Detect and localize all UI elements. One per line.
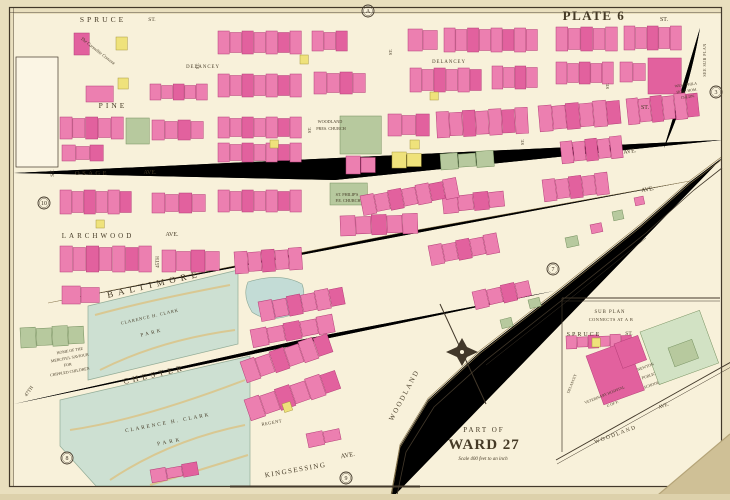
building xyxy=(126,118,149,144)
building xyxy=(361,158,375,173)
building xyxy=(182,462,199,477)
building xyxy=(670,26,681,50)
building xyxy=(242,31,253,54)
building xyxy=(288,247,302,270)
street-label-larchwood-ave: AVE. xyxy=(165,232,179,238)
building xyxy=(568,29,580,50)
building xyxy=(60,117,72,139)
building-row xyxy=(118,78,128,89)
building-row xyxy=(624,26,681,50)
building xyxy=(579,103,594,127)
building xyxy=(173,84,184,100)
building xyxy=(648,58,681,94)
woodland-pres-church-label-2: PRES. CHURCH xyxy=(316,126,346,131)
building xyxy=(624,26,635,50)
atlas-plate-map: A371089 SPRUCEST.PLATE 6ST.DELANCEYDELAN… xyxy=(0,0,730,500)
building xyxy=(290,143,301,162)
street-label-st-v1: ST. xyxy=(50,169,56,177)
building xyxy=(266,74,277,97)
building xyxy=(659,28,670,49)
building xyxy=(218,74,229,97)
building xyxy=(407,154,421,167)
building xyxy=(422,70,433,91)
building xyxy=(118,78,128,89)
building xyxy=(479,30,490,51)
building xyxy=(475,111,489,135)
svg-text:3: 3 xyxy=(715,90,718,96)
building-row xyxy=(648,58,681,94)
street-label-osage-ave: AVE. xyxy=(143,170,157,176)
building xyxy=(162,86,173,99)
building xyxy=(254,119,265,137)
building xyxy=(353,74,365,93)
street-label-pine-st: ST. xyxy=(641,105,650,111)
building xyxy=(515,66,526,89)
building xyxy=(491,28,502,52)
street-label-st-v10: ST. xyxy=(605,83,610,89)
building-row xyxy=(300,55,308,64)
building xyxy=(266,190,277,212)
building xyxy=(606,27,618,51)
building xyxy=(356,216,371,234)
blank-margin-block xyxy=(16,57,58,167)
building xyxy=(434,68,445,92)
building xyxy=(278,145,289,161)
building xyxy=(410,68,421,92)
building xyxy=(290,74,301,97)
building xyxy=(488,191,504,207)
building xyxy=(300,55,308,64)
building xyxy=(577,337,588,347)
building xyxy=(300,293,317,312)
building xyxy=(278,119,289,137)
edge-marker-7: 7 xyxy=(547,263,559,275)
street-label-spruce-st-right: ST. xyxy=(660,17,669,23)
building xyxy=(278,192,289,211)
svg-text:A: A xyxy=(366,9,371,15)
svg-text:8: 8 xyxy=(66,456,69,462)
building xyxy=(206,252,220,271)
building xyxy=(408,29,422,51)
building xyxy=(139,246,151,272)
building xyxy=(312,31,323,51)
building xyxy=(314,72,326,94)
edge-marker-3: 3 xyxy=(710,86,722,98)
building xyxy=(68,326,84,344)
building-row xyxy=(126,118,149,144)
building xyxy=(626,98,640,125)
building-row xyxy=(410,140,419,149)
building xyxy=(662,96,676,120)
building xyxy=(470,237,486,256)
building xyxy=(152,120,164,140)
building xyxy=(620,62,632,82)
street-label-45th: 45TH xyxy=(156,256,161,268)
svg-text:9: 9 xyxy=(345,476,348,482)
svg-text:7: 7 xyxy=(552,267,555,273)
building xyxy=(278,33,289,53)
building-row xyxy=(218,117,301,138)
building xyxy=(193,195,206,212)
building xyxy=(185,86,196,99)
building xyxy=(473,191,490,210)
building xyxy=(402,187,418,206)
building xyxy=(634,196,645,206)
inset-street-label-spruce: SPRUCE xyxy=(567,332,602,338)
building xyxy=(218,190,229,212)
building xyxy=(526,30,537,51)
building xyxy=(444,28,455,52)
building xyxy=(374,192,390,211)
building xyxy=(126,248,138,271)
building xyxy=(597,138,611,158)
building xyxy=(552,105,567,129)
building xyxy=(324,33,335,50)
building-row xyxy=(592,338,600,347)
building xyxy=(515,28,526,52)
building xyxy=(230,33,241,53)
st-philips-church-label-2: P.E. CHURCH xyxy=(335,198,360,203)
building xyxy=(230,76,241,96)
building xyxy=(62,286,80,304)
building-row xyxy=(62,145,103,161)
building xyxy=(650,95,664,122)
building xyxy=(230,192,241,211)
building xyxy=(581,27,593,51)
woodland-pres-church-label-1: WOODLAND xyxy=(318,119,343,124)
building xyxy=(579,62,590,84)
building xyxy=(449,112,463,136)
building xyxy=(266,117,277,138)
building xyxy=(594,172,609,195)
building xyxy=(486,287,503,305)
building xyxy=(81,288,99,303)
building xyxy=(72,192,83,213)
building xyxy=(242,143,253,162)
street-label-st-v9: ST. xyxy=(520,139,525,145)
building xyxy=(538,105,553,132)
sub-plan-title-1: SUB PLAN xyxy=(594,310,625,315)
street-label-st-v7: ST. xyxy=(388,49,393,55)
building xyxy=(462,110,476,137)
building-row xyxy=(634,196,645,206)
building xyxy=(242,117,253,138)
building xyxy=(96,220,104,228)
building xyxy=(340,72,352,94)
building xyxy=(336,31,347,51)
building xyxy=(218,143,229,162)
building xyxy=(430,92,438,100)
building xyxy=(492,66,503,89)
st-philips-church-label-1: ST. PHILIP'S xyxy=(336,192,359,197)
building-row xyxy=(218,190,301,212)
building xyxy=(647,26,658,50)
building xyxy=(633,64,645,81)
building-row xyxy=(312,31,347,51)
building-row xyxy=(96,220,104,228)
building xyxy=(568,64,579,83)
building xyxy=(387,215,402,233)
building xyxy=(267,325,286,343)
street-label-spruce-st: ST. xyxy=(148,17,156,23)
building xyxy=(150,84,161,100)
building xyxy=(254,33,265,53)
building xyxy=(572,141,586,161)
building xyxy=(402,116,415,135)
building xyxy=(150,467,167,482)
building xyxy=(290,117,301,138)
building xyxy=(275,250,289,270)
building xyxy=(178,120,190,140)
building xyxy=(568,175,583,198)
building xyxy=(371,214,387,235)
building-row xyxy=(430,92,438,100)
building xyxy=(446,70,457,91)
building xyxy=(612,210,624,221)
building xyxy=(440,153,458,170)
building xyxy=(254,145,265,161)
building xyxy=(76,147,89,160)
street-label-delancey-right: DELANCEY xyxy=(432,60,466,65)
building xyxy=(98,119,110,138)
building xyxy=(290,31,301,54)
building xyxy=(230,145,241,161)
building xyxy=(99,248,111,271)
building xyxy=(270,140,278,148)
building xyxy=(327,74,339,93)
building-row xyxy=(218,74,301,97)
building-row xyxy=(556,62,613,84)
building xyxy=(20,327,36,348)
building xyxy=(86,246,98,272)
building xyxy=(388,114,401,136)
building-row xyxy=(60,117,123,139)
building xyxy=(340,215,356,236)
street-label-osage: OSAGE xyxy=(75,170,109,177)
edge-marker-10: 10 xyxy=(38,197,50,209)
building xyxy=(278,76,289,96)
building-row xyxy=(270,140,278,148)
building xyxy=(283,321,302,342)
building xyxy=(191,122,203,139)
building xyxy=(86,86,113,102)
building-row xyxy=(150,84,207,100)
building xyxy=(254,192,265,211)
building xyxy=(179,193,192,213)
building xyxy=(392,152,406,168)
building xyxy=(108,190,119,214)
building xyxy=(402,213,418,234)
building xyxy=(96,192,107,213)
building xyxy=(592,338,600,347)
scale-note: Scale 400 feet to an inch xyxy=(458,457,508,462)
building xyxy=(410,140,419,149)
building xyxy=(73,119,85,138)
building xyxy=(113,246,125,272)
building xyxy=(542,178,557,201)
building-row xyxy=(556,27,617,51)
sub-plan-title-2: CONNECTS AT A B xyxy=(589,317,634,322)
building-row xyxy=(388,114,429,136)
building xyxy=(527,68,538,88)
building xyxy=(86,117,98,139)
building xyxy=(116,37,127,50)
building-row xyxy=(340,116,381,154)
building-row xyxy=(86,86,113,102)
building xyxy=(36,328,52,346)
building xyxy=(329,287,346,306)
building xyxy=(248,252,262,272)
building xyxy=(218,117,229,138)
building-row xyxy=(340,213,418,236)
building xyxy=(468,28,479,52)
building xyxy=(84,190,95,214)
building xyxy=(120,192,131,213)
edge-marker-8: 8 xyxy=(61,452,73,464)
building xyxy=(416,114,429,136)
building-row xyxy=(218,143,301,162)
building xyxy=(162,250,176,272)
building xyxy=(62,145,75,161)
building xyxy=(565,102,580,129)
building-row xyxy=(218,31,301,54)
building-row xyxy=(116,37,127,50)
street-label-delancey-left: DELANCEY xyxy=(186,65,220,70)
building xyxy=(290,190,301,212)
building xyxy=(585,138,599,161)
building xyxy=(556,27,568,51)
area-title-ward-27: WARD 27 xyxy=(448,437,520,453)
building xyxy=(340,116,381,154)
building xyxy=(606,100,621,124)
building xyxy=(515,107,529,134)
building xyxy=(458,153,476,167)
building xyxy=(230,119,241,137)
building xyxy=(515,281,532,299)
building xyxy=(177,252,191,271)
building xyxy=(272,298,289,317)
building xyxy=(73,248,85,271)
building xyxy=(470,70,481,91)
building xyxy=(196,84,207,100)
building xyxy=(458,68,469,92)
building xyxy=(503,30,514,51)
building xyxy=(266,31,277,54)
building xyxy=(436,111,450,138)
building xyxy=(111,117,123,139)
street-label-spruce: SPRUCE xyxy=(80,15,126,24)
building xyxy=(592,100,607,127)
building xyxy=(218,31,229,54)
building xyxy=(166,195,179,212)
building xyxy=(429,182,445,201)
building xyxy=(456,30,467,51)
building xyxy=(60,246,72,272)
area-title-part-of: PART OF xyxy=(463,426,504,434)
building xyxy=(458,194,474,210)
building xyxy=(242,74,253,97)
edge-marker-9: 9 xyxy=(340,472,352,484)
building xyxy=(346,156,360,174)
edge-marker-a: A xyxy=(362,5,374,17)
building xyxy=(555,178,570,198)
building xyxy=(306,431,325,448)
building xyxy=(300,319,319,337)
building xyxy=(636,28,647,49)
building xyxy=(476,150,494,167)
svg-text:10: 10 xyxy=(41,201,47,207)
street-label-st-v5: ST. xyxy=(307,127,312,133)
building xyxy=(602,62,613,84)
building xyxy=(316,314,335,335)
building xyxy=(165,122,177,139)
building xyxy=(250,327,269,348)
see-sub-plan-note: SEE SUB PLAN xyxy=(702,43,707,76)
building xyxy=(60,190,71,214)
building xyxy=(591,64,602,83)
inset-street-label-spruce-st: ST. xyxy=(625,331,633,337)
building xyxy=(52,326,68,347)
building xyxy=(90,145,103,161)
building xyxy=(234,251,248,274)
building xyxy=(504,68,515,88)
building xyxy=(560,141,574,164)
building xyxy=(556,62,567,84)
building xyxy=(242,190,253,212)
building xyxy=(489,109,503,136)
street-label-larchwood: LARCHWOOD xyxy=(62,232,135,240)
building xyxy=(581,175,596,195)
building xyxy=(152,193,165,213)
building xyxy=(442,242,458,261)
plate-title: PLATE 6 xyxy=(563,8,626,23)
building-row xyxy=(60,246,151,272)
building xyxy=(593,29,605,50)
atlas-page: A371089 SPRUCEST.PLATE 6ST.DELANCEYDELAN… xyxy=(0,0,730,500)
street-label-st-v3: ST. xyxy=(195,63,200,69)
street-label-pine: PINE xyxy=(99,101,128,110)
building xyxy=(502,109,516,133)
building xyxy=(254,76,265,96)
building xyxy=(261,249,275,272)
building xyxy=(423,31,437,50)
building xyxy=(609,136,623,159)
building-row xyxy=(234,247,303,274)
building-row xyxy=(612,210,624,221)
